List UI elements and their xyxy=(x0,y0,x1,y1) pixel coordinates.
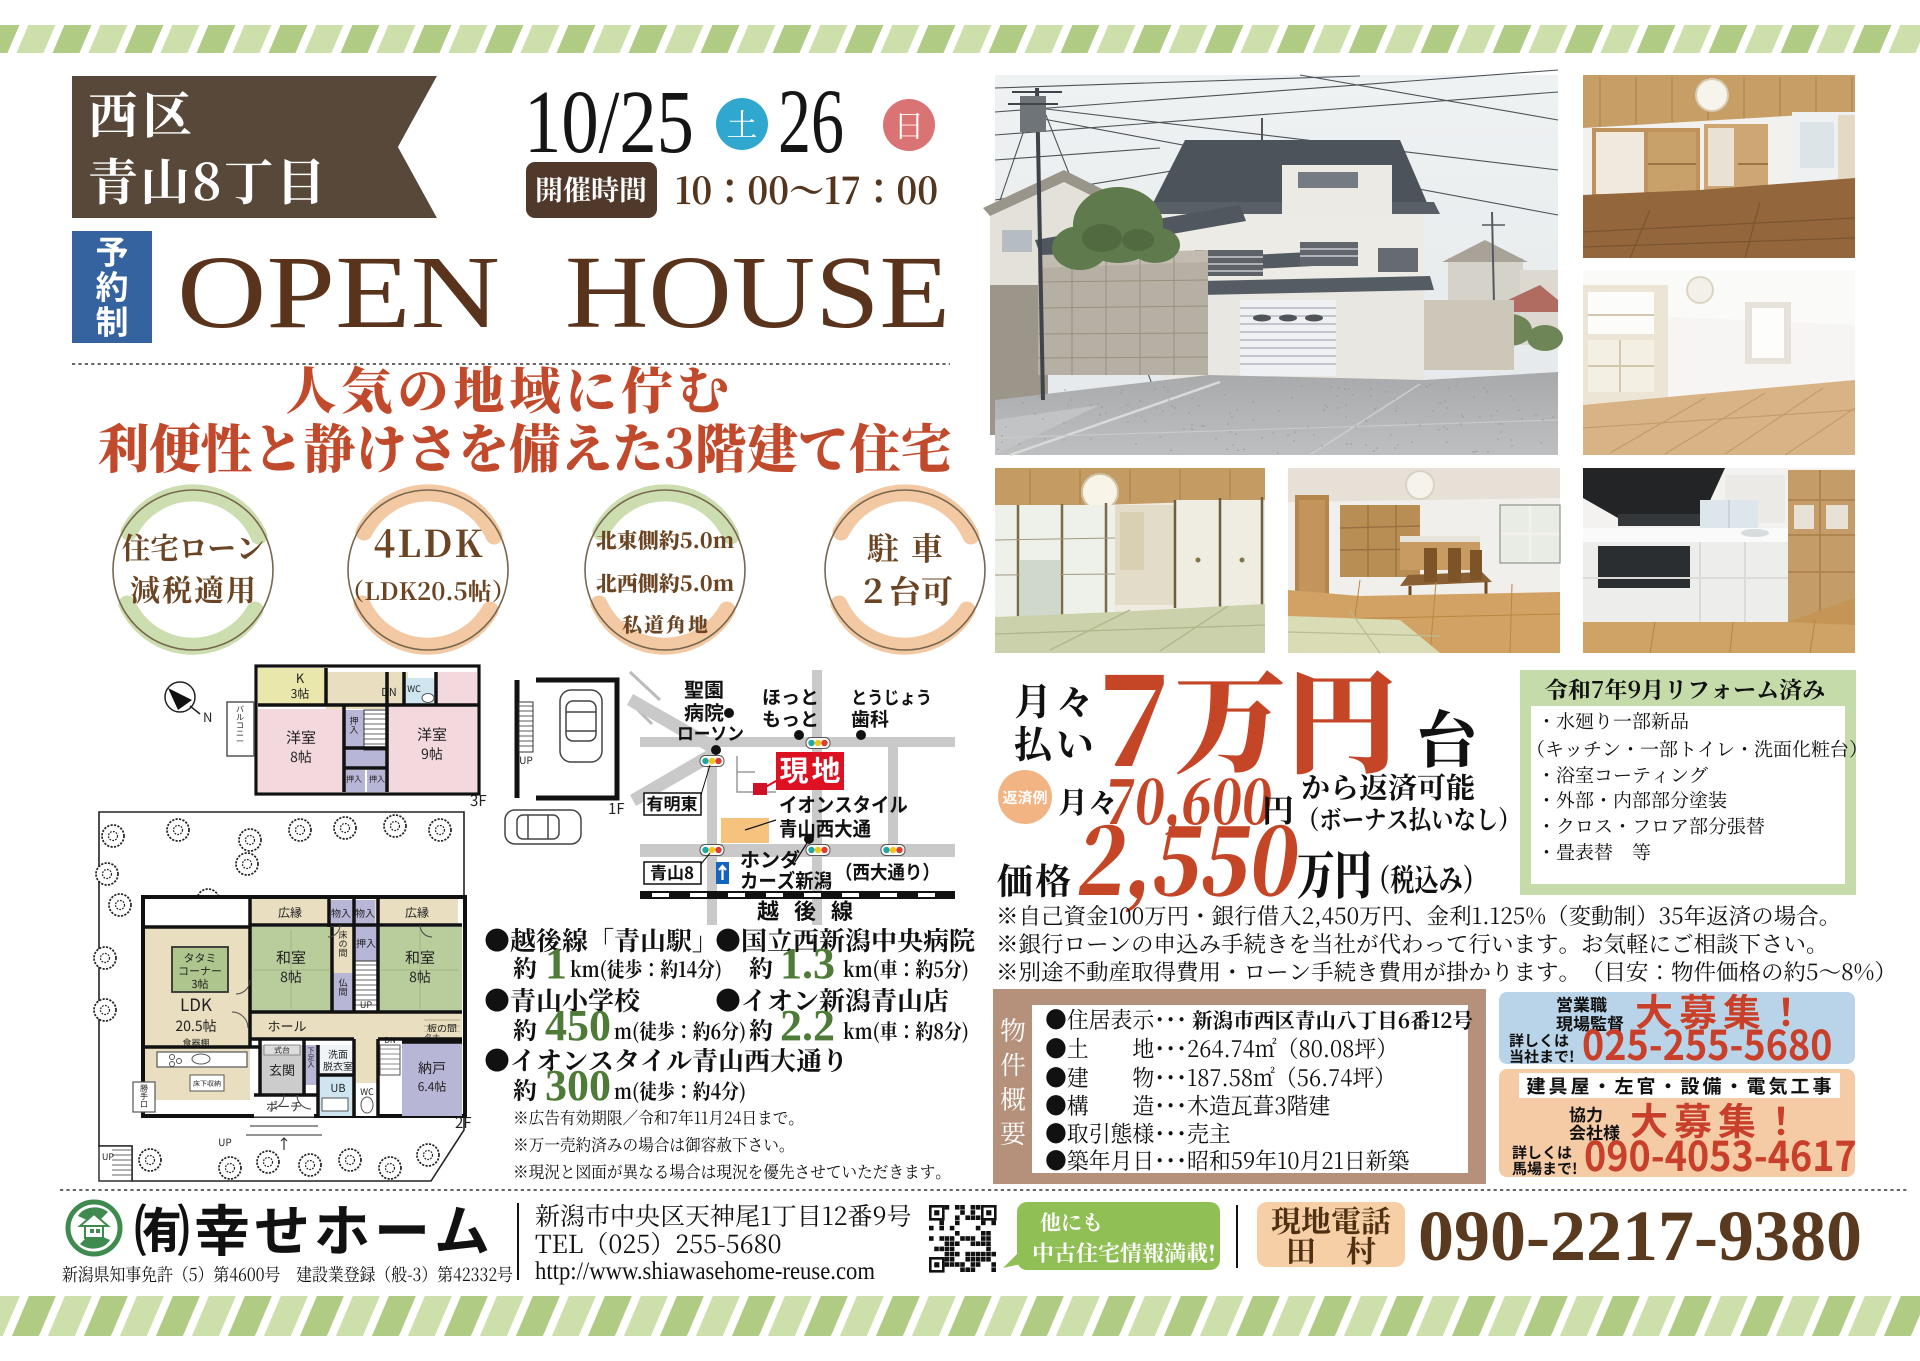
svg-text:300: 300 xyxy=(545,1061,611,1110)
svg-text:OPEN: OPEN xyxy=(177,235,500,350)
svg-text:1: 1 xyxy=(545,939,567,988)
svg-text:090-2217-9380: 090-2217-9380 xyxy=(1418,1196,1862,1276)
svg-text:26: 26 xyxy=(778,70,844,172)
svg-text:2.2: 2.2 xyxy=(780,1001,835,1050)
svg-text:450: 450 xyxy=(545,1001,611,1050)
svg-text:HOUSE: HOUSE xyxy=(565,235,950,350)
svg-text:http://www.shiawasehome-reuse.: http://www.shiawasehome-reuse.com xyxy=(535,1258,876,1285)
svg-text:10/25: 10/25 xyxy=(524,73,694,172)
svg-text:1.3: 1.3 xyxy=(780,939,835,988)
